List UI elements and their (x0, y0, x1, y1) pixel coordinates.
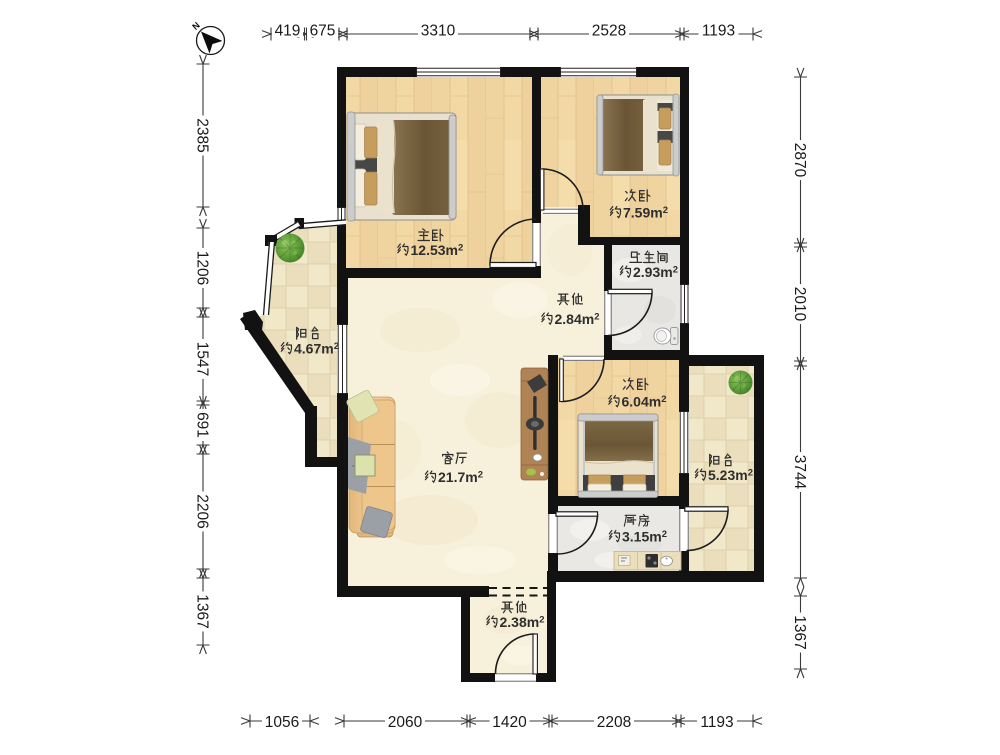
svg-text:1367: 1367 (791, 615, 808, 649)
svg-text:5.23m2: 5.23m2 (708, 467, 753, 483)
svg-text:7.59m2: 7.59m2 (623, 205, 668, 221)
svg-text:21.7m2: 21.7m2 (438, 469, 483, 485)
svg-text:4.67m2: 4.67m2 (294, 341, 339, 357)
svg-text:1206: 1206 (194, 251, 211, 285)
svg-text:12.53m2: 12.53m2 (411, 242, 464, 258)
svg-text:2870: 2870 (791, 143, 808, 178)
svg-text:1193: 1193 (700, 714, 733, 731)
svg-text:1547: 1547 (194, 342, 211, 376)
svg-text:6.04m2: 6.04m2 (622, 394, 667, 410)
svg-text:N: N (190, 20, 202, 32)
svg-text:2010: 2010 (791, 287, 808, 322)
svg-text:3.15m2: 3.15m2 (622, 529, 667, 545)
svg-text:2206: 2206 (194, 494, 211, 528)
svg-text:3310: 3310 (421, 23, 456, 40)
svg-text:675: 675 (310, 23, 336, 40)
svg-text:691: 691 (194, 412, 211, 438)
svg-text:1056: 1056 (265, 714, 299, 731)
svg-text:2385: 2385 (194, 118, 211, 152)
svg-text:419: 419 (275, 23, 301, 40)
svg-text:2060: 2060 (388, 714, 423, 731)
svg-text:1193: 1193 (702, 23, 735, 40)
svg-text:3744: 3744 (791, 455, 808, 490)
svg-text:2.84m2: 2.84m2 (555, 311, 600, 327)
svg-text:1367: 1367 (194, 594, 211, 628)
svg-text:1420: 1420 (492, 714, 527, 731)
svg-text:2.38m2: 2.38m2 (500, 614, 545, 630)
svg-text:2.93m2: 2.93m2 (633, 264, 678, 280)
svg-text:2208: 2208 (597, 714, 631, 731)
svg-text:2528: 2528 (592, 23, 626, 40)
